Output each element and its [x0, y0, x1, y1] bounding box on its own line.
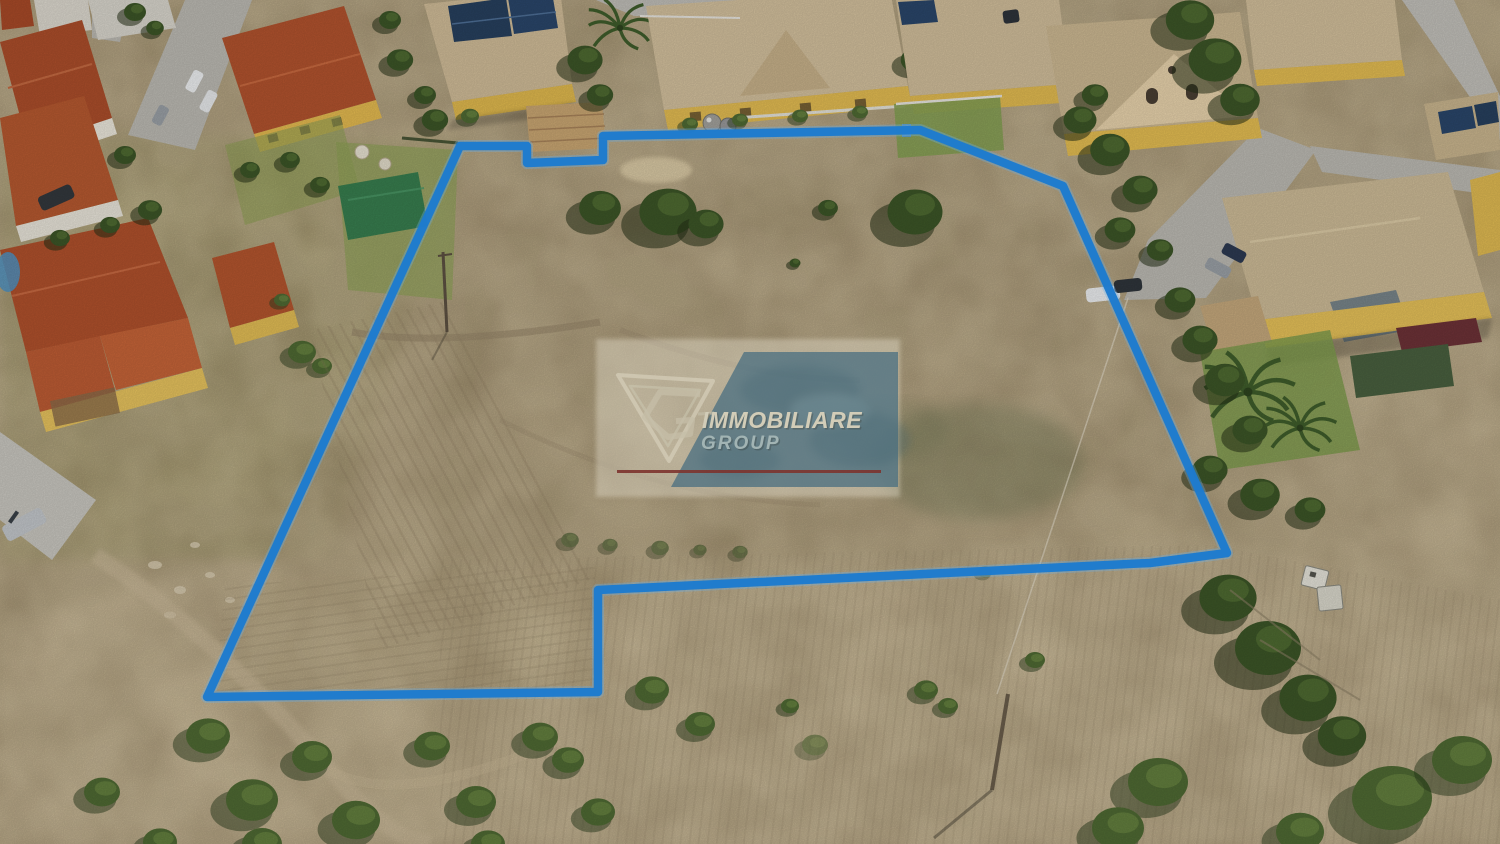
watermark-underline [617, 470, 881, 473]
aerial-photo: IMMOBILIARE IMMOBILIARE GROUP GROUP [0, 0, 1500, 844]
brand-line1: IMMOBILIARE [702, 407, 862, 433]
watermark: IMMOBILIARE IMMOBILIARE GROUP GROUP [596, 339, 910, 497]
brand-line2: GROUP [701, 433, 781, 454]
